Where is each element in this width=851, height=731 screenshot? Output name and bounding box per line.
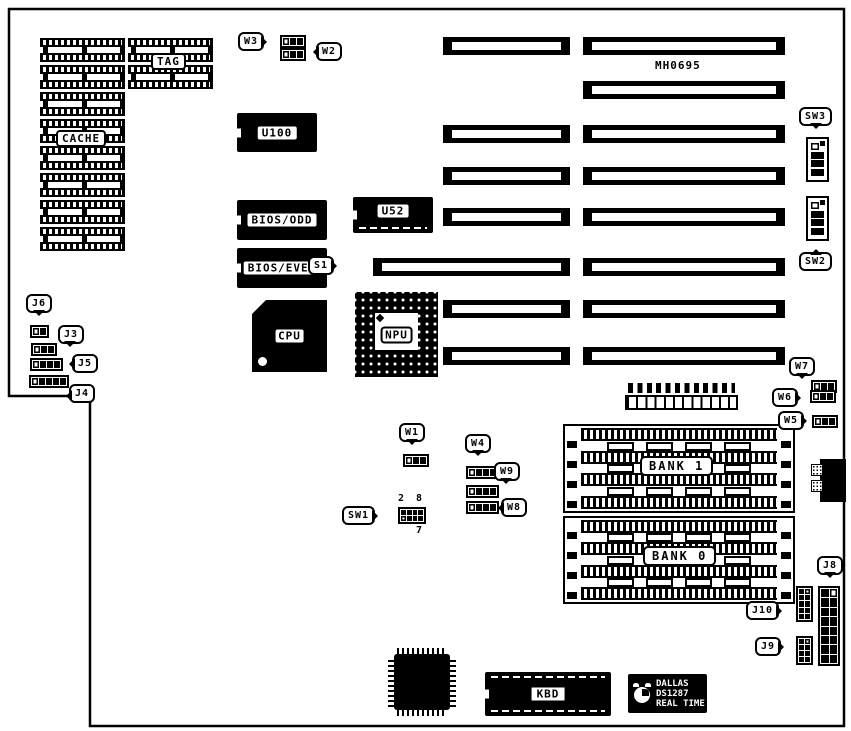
expansion-slot: [443, 208, 570, 226]
callout-tail: [331, 260, 343, 272]
motherboard-diagram: CACHE TAG W3 W2 U100 BIOS/ODD U52 BIOS/E…: [0, 0, 851, 731]
expansion-slot: [583, 37, 785, 55]
sw1-pin-number: 2: [398, 493, 404, 504]
switch-label-sw1: SW1: [342, 506, 375, 525]
connector-label-j3: J3: [58, 325, 84, 344]
power-pin-block: [811, 464, 823, 476]
callout-tail: [824, 572, 836, 584]
dip-chip: [40, 92, 125, 116]
expansion-slot: [583, 300, 785, 318]
jumper-j4: [29, 375, 69, 388]
expansion-slot: [583, 81, 785, 99]
expansion-slot: [443, 300, 570, 318]
jumper-label-w8: W8: [501, 498, 527, 517]
callout-tail: [796, 373, 808, 385]
cache-label: CACHE: [56, 130, 106, 147]
pin1-dot: [258, 357, 267, 366]
bank1-label: BANK 1: [640, 456, 713, 476]
switch-label-sw2: SW2: [799, 252, 832, 271]
dip-chip: [40, 227, 125, 251]
simm-socket: [581, 428, 777, 441]
bank0-label: BANK 0: [643, 546, 716, 566]
rtc-type: REAL TIME: [656, 699, 705, 709]
callout-tail: [372, 510, 384, 522]
switch-pip: [820, 200, 825, 205]
dip-switch-sw1: [398, 507, 426, 524]
sw1-pin-number: 7: [416, 525, 422, 536]
expansion-slot: [583, 167, 785, 185]
sw1-pin-number: 8: [416, 493, 422, 504]
rtc-model: DS1287: [656, 689, 705, 699]
connector-label-j5: J5: [72, 354, 98, 373]
socket-npu: NPU: [355, 292, 438, 377]
jumper-w5: [812, 415, 838, 428]
callout-tail: [795, 392, 807, 404]
simm-module: [607, 487, 751, 496]
expansion-slot: [443, 37, 570, 55]
callout-tail: [810, 243, 822, 255]
header-j8: [818, 586, 840, 666]
pin-header-strip: [625, 383, 738, 410]
simm-module: [607, 578, 751, 587]
simm-socket: [581, 565, 777, 578]
tag-label: TAG: [151, 53, 186, 70]
jumper-label-w3: W3: [238, 32, 264, 51]
simm-socket: [581, 587, 777, 600]
jumper-label-w7: W7: [789, 357, 815, 376]
callout-tail: [64, 341, 76, 353]
jumper-w2: [280, 48, 306, 61]
dip-chip: [40, 38, 125, 62]
dip-chip: [40, 173, 125, 197]
dip-switch-sw2: [806, 196, 829, 241]
chip-u100: U100: [237, 113, 317, 152]
expansion-slot: [583, 125, 785, 143]
callout-tail: [406, 439, 418, 451]
switch-label-sw3: SW3: [799, 107, 832, 126]
chip-bios-odd: BIOS/ODD: [237, 200, 327, 240]
connector-label-j4: J4: [69, 384, 95, 403]
chip-cpu: CPU: [252, 300, 327, 372]
jumper-j6: [30, 325, 49, 338]
callout-tail: [492, 502, 504, 514]
expansion-slot: [443, 167, 570, 185]
simm-module: [607, 442, 751, 451]
switch-pip: [820, 141, 825, 146]
expansion-slot: [443, 347, 570, 365]
callout-tail: [778, 641, 790, 653]
expansion-slot: [583, 258, 785, 276]
jumper-w1: [403, 454, 429, 467]
dip-switch-sw3: [806, 137, 829, 182]
expansion-slot: [583, 208, 785, 226]
slot-s1: [373, 258, 570, 276]
connector-label-j6: J6: [26, 294, 52, 313]
jumper-label-w5: W5: [778, 411, 804, 430]
slot-label-s1: S1: [308, 256, 334, 275]
rtc-chip-dallas: DALLAS DS1287 REAL TIME: [628, 674, 707, 713]
callout-tail: [472, 450, 484, 462]
dip-chip: [40, 200, 125, 224]
jumper-w3: [280, 35, 306, 48]
callout-tail: [63, 358, 75, 370]
jumper-w6: [810, 390, 836, 403]
power-pin-block: [811, 480, 823, 492]
dip-chip: [40, 65, 125, 89]
simm-socket: [581, 496, 777, 509]
callout-tail: [60, 390, 72, 402]
callout-tail: [801, 415, 813, 427]
connector-label-j9: J9: [755, 637, 781, 656]
jumper-j3: [31, 343, 57, 356]
callout-tail: [500, 478, 512, 490]
expansion-slot: [443, 125, 570, 143]
qfp-chip: [388, 648, 456, 716]
dip-chip: [40, 146, 125, 170]
expansion-slot: [583, 347, 785, 365]
alarm-clock-icon: [633, 683, 651, 705]
callout-tail: [776, 605, 788, 617]
callout-tail: [33, 310, 45, 322]
chip-u52: U52: [353, 197, 433, 233]
connector-label-j8: J8: [817, 556, 843, 575]
jumper-label-w2: W2: [316, 42, 342, 61]
rtc-brand: DALLAS: [656, 679, 705, 689]
jumper-label-w4: W4: [465, 434, 491, 453]
callout-tail: [307, 46, 319, 58]
callout-tail: [810, 123, 822, 135]
power-connector: [820, 459, 846, 502]
jumper-label-w6: W6: [772, 388, 798, 407]
jumper-label-w1: W1: [399, 423, 425, 442]
header-j9: [796, 636, 813, 665]
simm-module: [607, 533, 751, 542]
jumper-label-w9: W9: [494, 462, 520, 481]
callout-tail: [261, 36, 273, 48]
chip-kbd: KBD: [485, 672, 611, 716]
connector-label-j10: J10: [746, 601, 779, 620]
simm-socket: [581, 520, 777, 533]
board-number: MH0695: [655, 59, 701, 72]
jumper-w9: [466, 485, 499, 498]
header-j10: [796, 586, 813, 622]
jumper-j5: [30, 358, 63, 371]
